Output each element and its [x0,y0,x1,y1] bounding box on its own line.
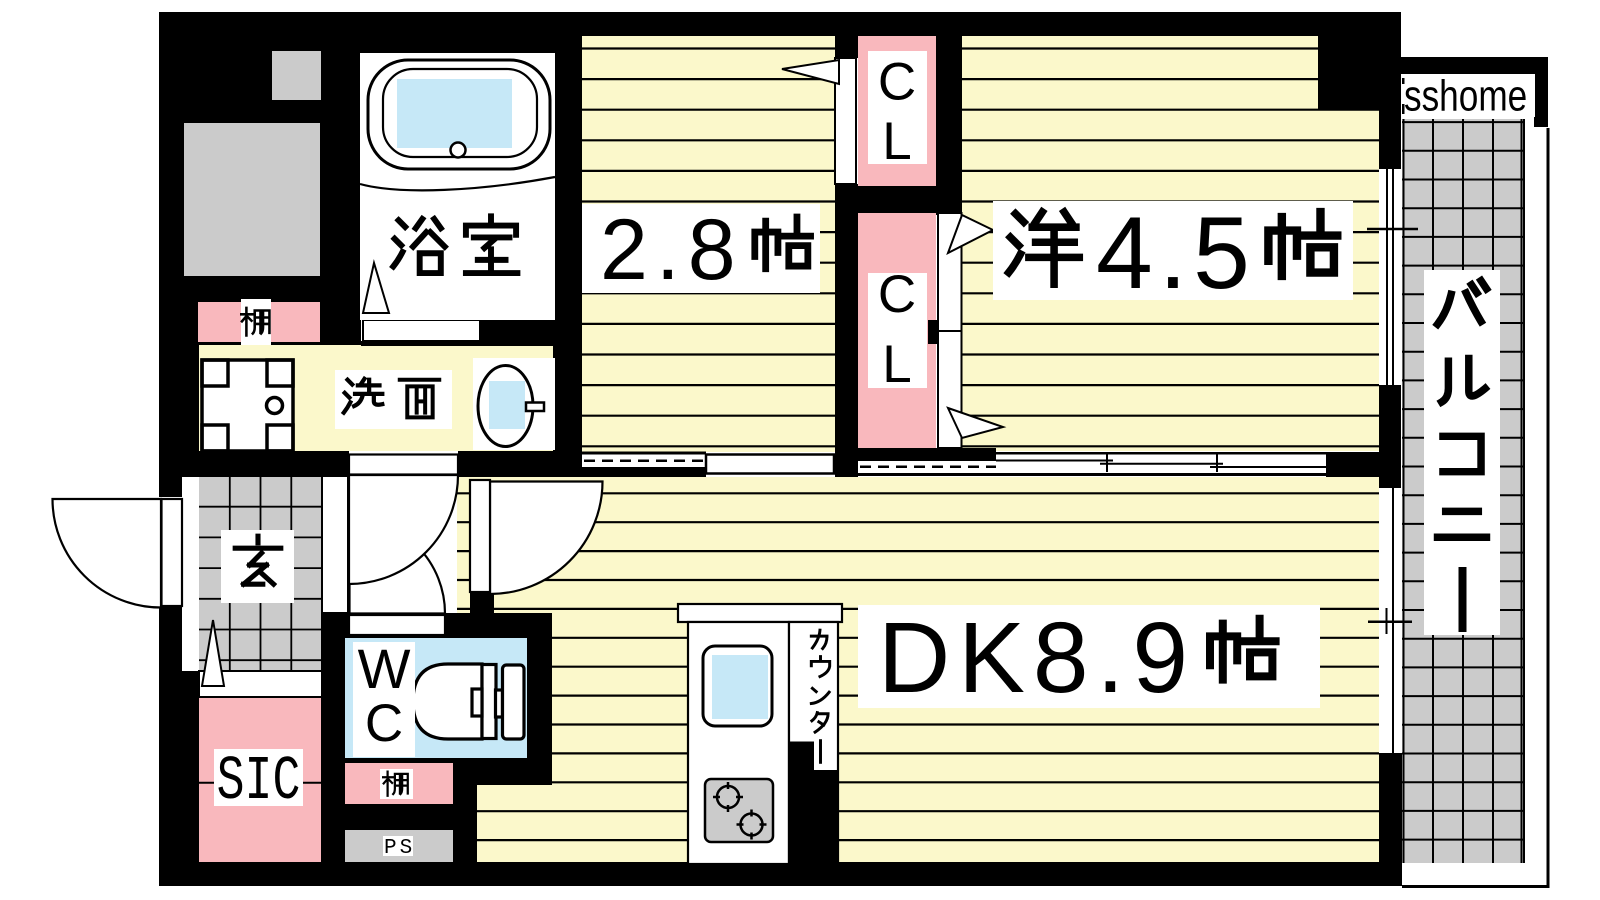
svg-text:L: L [882,112,911,171]
svg-text:PS: PS [384,837,415,860]
svg-text:C: C [365,694,403,753]
svg-text:4.5: 4.5 [1096,196,1256,310]
svg-text:L: L [882,335,911,394]
svg-text:C: C [878,53,916,112]
svg-text:DK8.9: DK8.9 [878,602,1196,714]
svg-text:SIC: SIC [217,747,301,817]
svg-text:W: W [358,637,411,700]
svg-text:sshome: sshome [1404,72,1527,121]
svg-text:2.8: 2.8 [600,202,744,298]
svg-text:C: C [878,265,916,324]
